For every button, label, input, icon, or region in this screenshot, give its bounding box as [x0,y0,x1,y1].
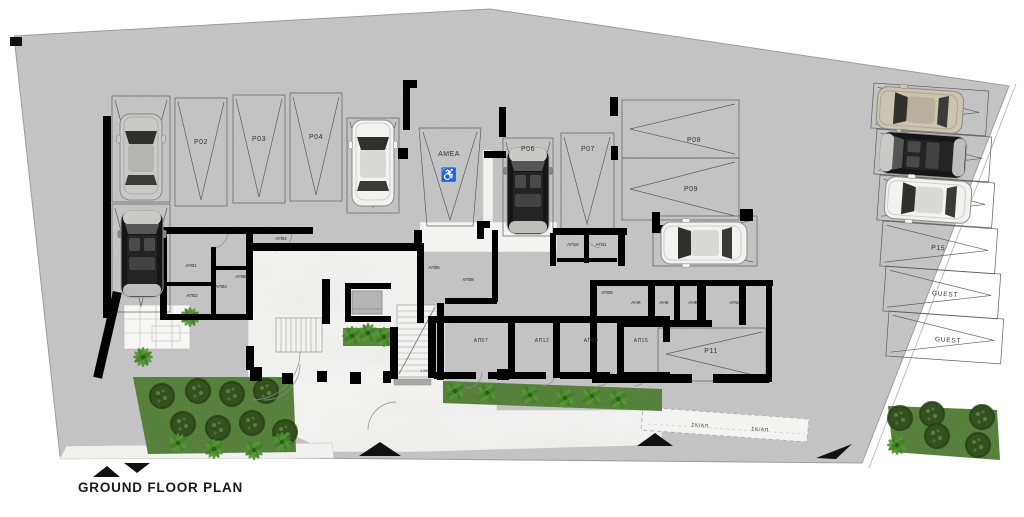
floor-plan-canvas: P02 P03 P04 AMEA ♿ P06 P07 P08 P09 P11 P… [0,0,1024,517]
patio-tiles [124,305,190,349]
label-p04: P04 [309,134,323,141]
label-ahk-3: AHK [688,300,698,305]
label-ap13: ΑΠ13 [584,338,599,344]
car-white [661,219,747,268]
label-amea: AMEA [438,151,460,158]
page-title: GROUND FLOOR PLAN [78,480,243,495]
label-ap05: ΑΠ05 [428,265,440,270]
label-p11: P11 [704,348,717,355]
stair-west [276,318,322,352]
label-ap15: ΑΠ15 [634,338,649,344]
car-white [883,173,972,228]
label-ap12: ΑΠ12 [535,338,550,344]
label-p08: P08 [687,137,701,144]
label-ahk-1: AHK [631,300,641,305]
label-skap-2: ΣΚ/ΑΠ [751,426,769,433]
label-ap06: ΑΠ06 [235,274,247,279]
car-silver [117,114,166,200]
label-ahk-2: AHK [659,300,669,305]
label-ap11: ΑΠ11 [595,242,607,247]
label-guest-2: GUEST [935,336,962,345]
entry-steps [394,379,431,385]
floor-plan-page: P02 P03 P04 AMEA ♿ P06 P07 P08 P09 P11 P… [0,0,1024,517]
label-skap-1: ΣΚ/ΑΠ [691,422,709,429]
label-p06: P06 [521,146,535,153]
label-p07: P07 [581,146,595,153]
wheelchair-icon: ♿ [441,167,457,182]
label-guest-1: GUEST [932,290,959,299]
car-dark-open [504,148,553,234]
label-ap07: ΑΠ07 [474,338,489,344]
label-ap16: ΑΠ16 [729,300,741,305]
dimension-stair-width: 1.50 [420,368,429,373]
entrance-arrow [124,463,150,473]
label-ap01: ΑΠ01 [185,263,197,268]
label-ap08: ΑΠ08 [462,277,474,282]
corner-mark [10,37,22,46]
car-beige [875,83,964,138]
label-p09: P09 [684,186,698,193]
entrance-arrow [93,466,120,477]
car-white [349,120,398,206]
label-ap09: ΑΠ09 [601,290,613,295]
label-p15: P15 [931,245,945,253]
car-dark-open [878,128,967,183]
label-ap04: ΑΠ04 [275,236,287,241]
label-ap02: ΑΠ02 [186,293,198,298]
label-p02: P02 [194,139,208,146]
car-dark-open [118,211,167,297]
label-ap10: ΑΠ10 [567,242,579,247]
label-ap03: ΑΠ03 [215,284,227,289]
label-p03: P03 [252,136,266,143]
